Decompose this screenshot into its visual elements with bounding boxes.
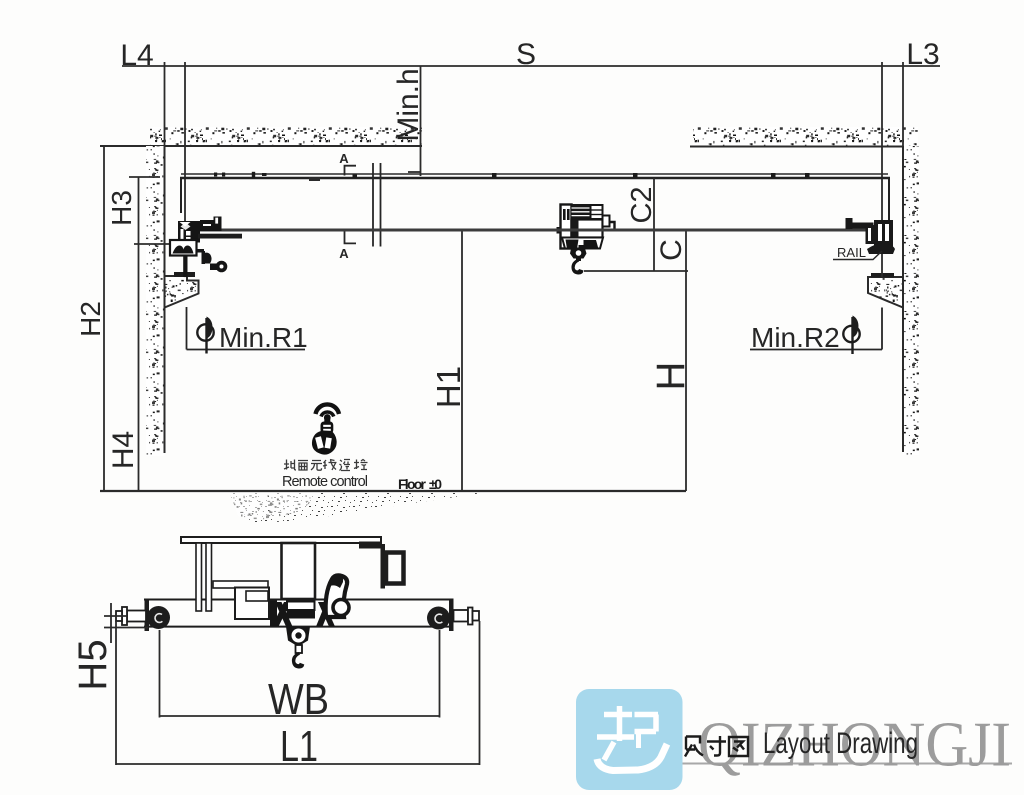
svg-text:A: A xyxy=(339,151,349,166)
svg-text:H3: H3 xyxy=(106,190,137,226)
svg-text:C2: C2 xyxy=(626,186,658,223)
svg-text:H1: H1 xyxy=(430,366,467,408)
svg-text:H: H xyxy=(649,362,693,391)
svg-text:Min.R2: Min.R2 xyxy=(751,322,840,353)
svg-text:A: A xyxy=(339,246,349,261)
svg-text:Min.h: Min.h xyxy=(392,68,425,141)
svg-text:Remote control: Remote control xyxy=(282,474,368,490)
svg-text:Min.R1: Min.R1 xyxy=(219,322,308,353)
svg-text:WB: WB xyxy=(268,675,329,724)
svg-text:RAIL: RAIL xyxy=(837,245,866,260)
svg-text:H4: H4 xyxy=(107,431,140,469)
svg-text:L4: L4 xyxy=(120,39,153,72)
svg-text:H5: H5 xyxy=(71,639,115,690)
svg-text:H2: H2 xyxy=(75,301,106,337)
svg-text:C: C xyxy=(655,239,688,261)
svg-text:L1: L1 xyxy=(280,722,318,771)
svg-text:S: S xyxy=(516,38,536,71)
svg-text:L3: L3 xyxy=(906,38,939,71)
svg-text:Layout Drawing: Layout Drawing xyxy=(763,727,918,760)
svg-text:±0: ±0 xyxy=(429,476,442,492)
svg-text:Floor: Floor xyxy=(398,476,427,492)
